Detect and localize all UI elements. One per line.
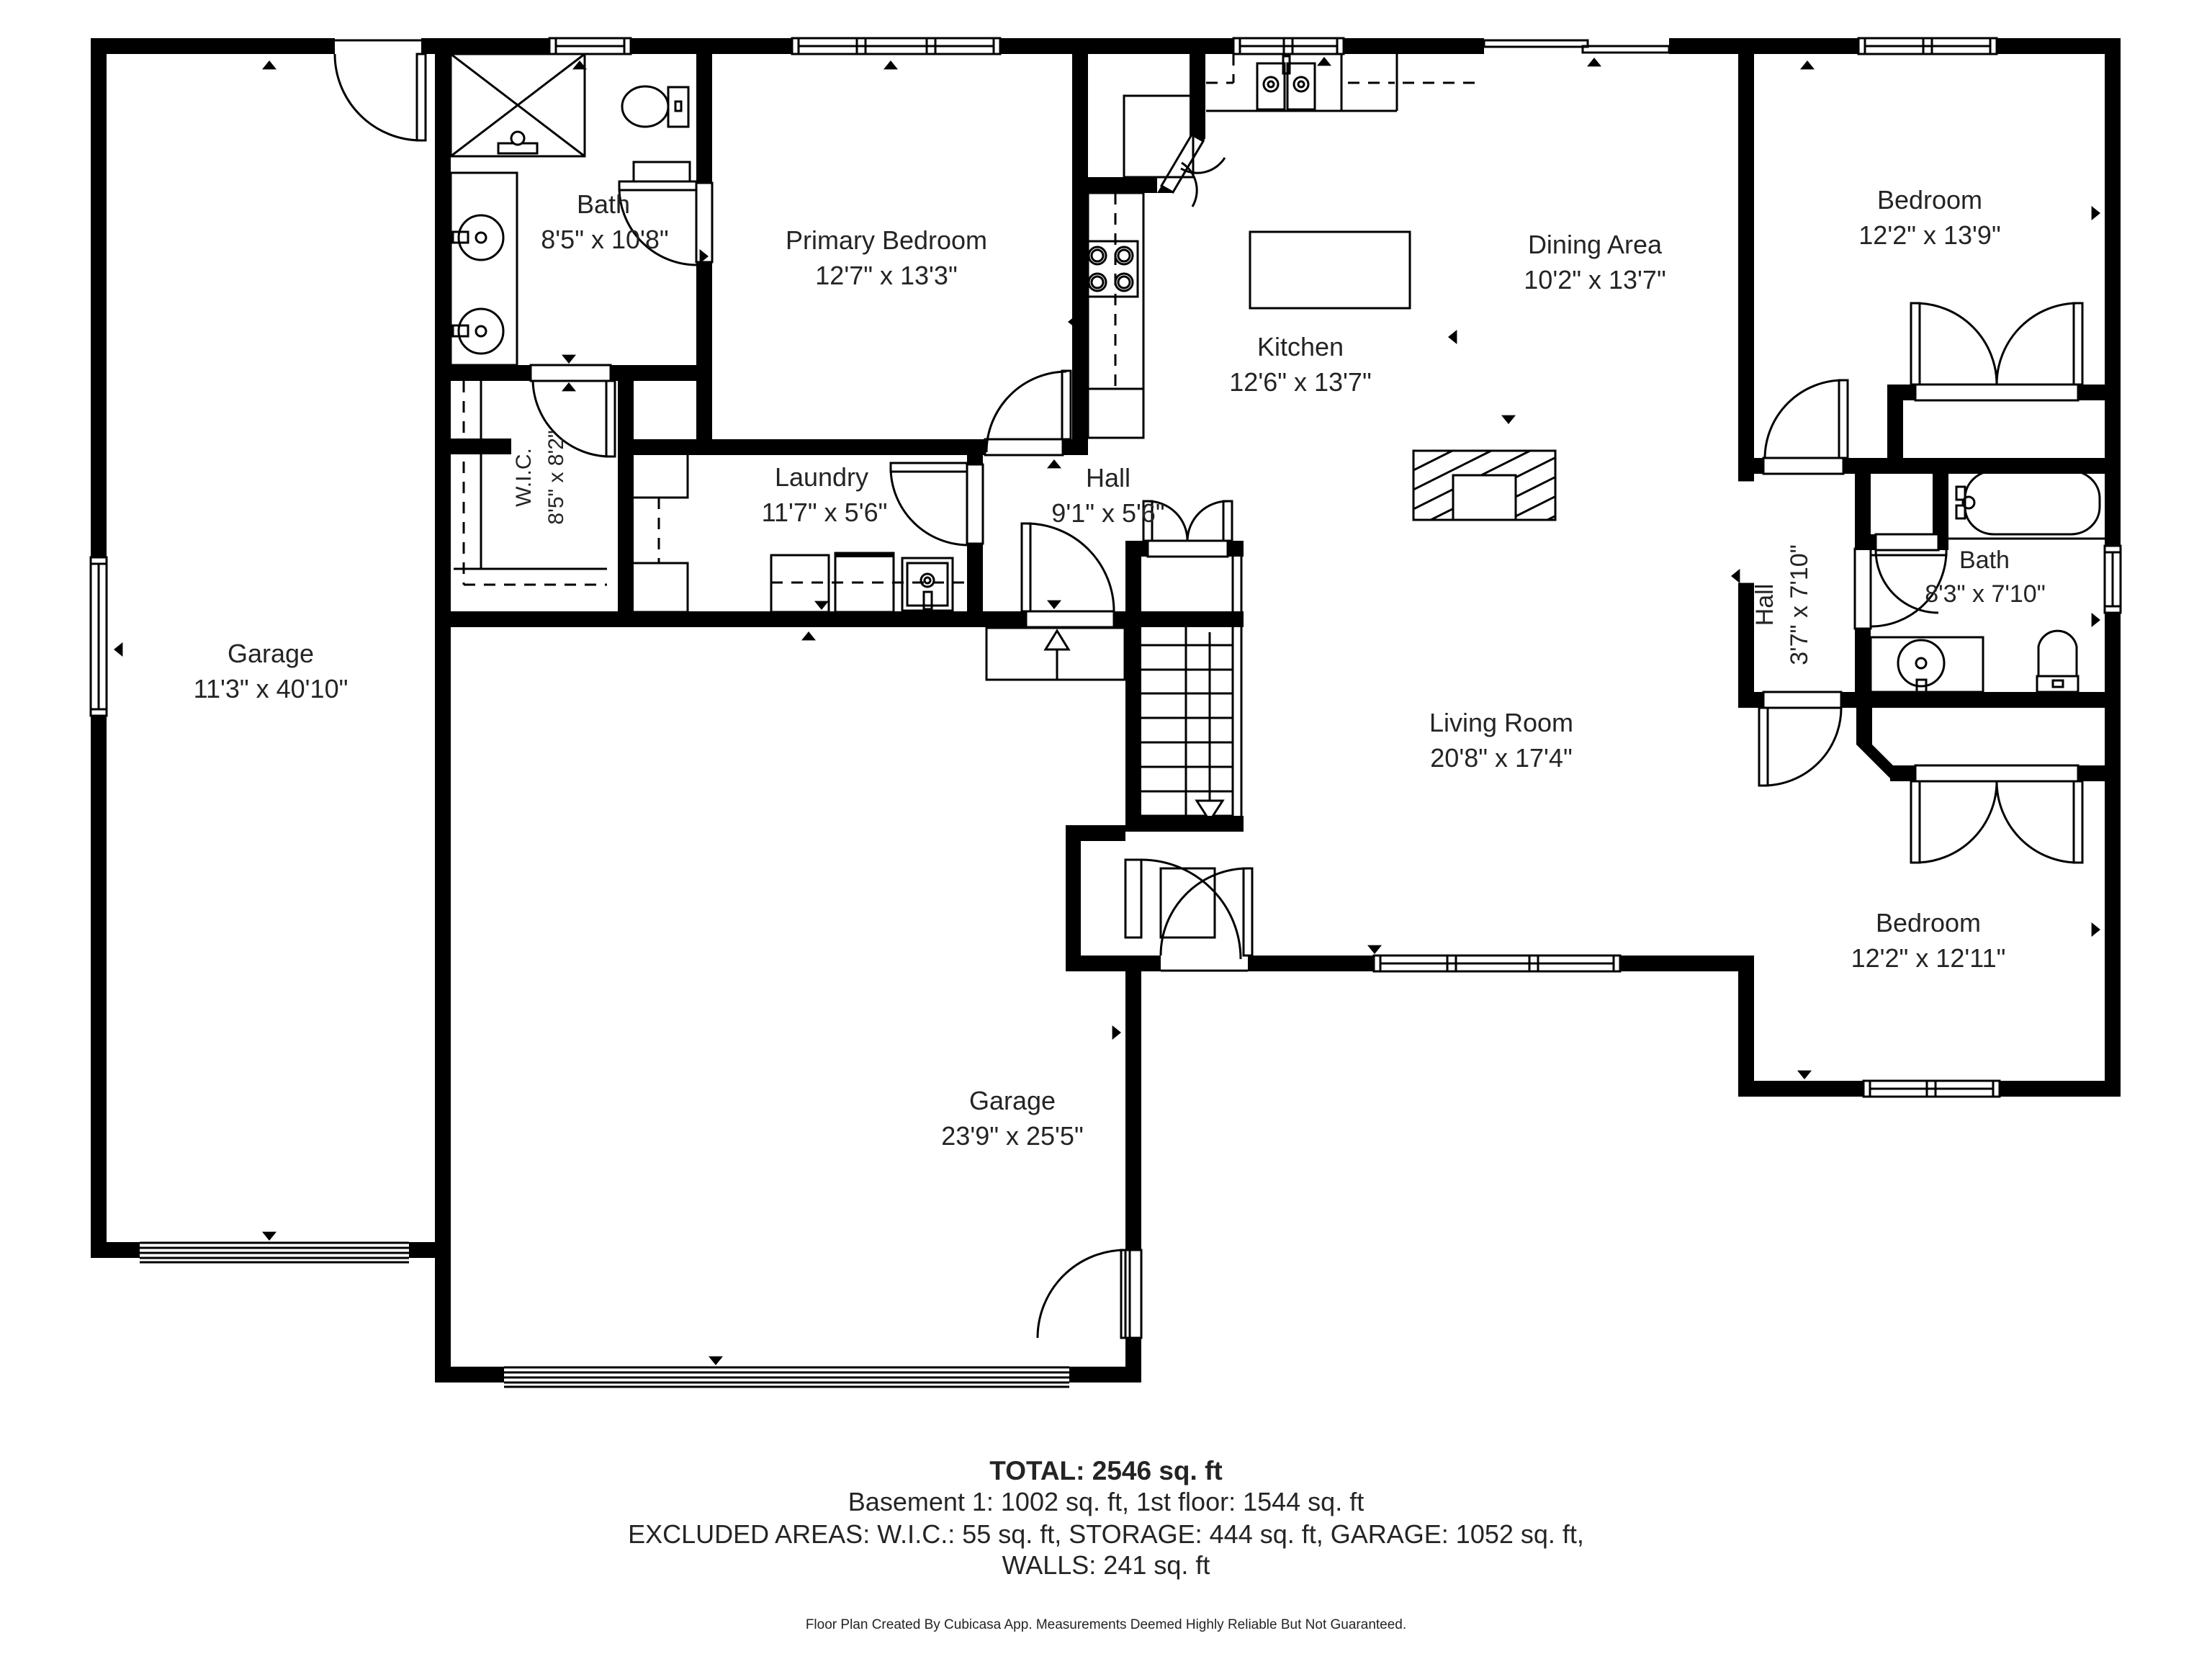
svg-text:12'2" x 13'9": 12'2" x 13'9" xyxy=(1858,220,2000,250)
svg-text:20'8" x 17'4": 20'8" x 17'4" xyxy=(1430,743,1572,773)
svg-text:8'3" x 7'10": 8'3" x 7'10" xyxy=(1925,580,2046,608)
svg-text:10'2" x 13'7": 10'2" x 13'7" xyxy=(1524,265,1665,295)
svg-text:Hall: Hall xyxy=(1086,463,1130,493)
svg-text:Floor Plan Created By Cubicasa: Floor Plan Created By Cubicasa App. Meas… xyxy=(806,1617,1406,1632)
svg-text:Laundry: Laundry xyxy=(775,462,868,492)
svg-text:Dining Area: Dining Area xyxy=(1528,230,1663,259)
svg-text:9'1" x 5'6": 9'1" x 5'6" xyxy=(1051,498,1164,528)
svg-text:12'7" x 13'3": 12'7" x 13'3" xyxy=(815,261,957,290)
svg-text:23'9" x 25'5": 23'9" x 25'5" xyxy=(941,1121,1083,1151)
svg-text:Hall: Hall xyxy=(1751,584,1779,626)
svg-text:Living Room: Living Room xyxy=(1429,708,1573,737)
svg-text:3'7" x 7'10": 3'7" x 7'10" xyxy=(1786,544,1813,665)
svg-text:Bath: Bath xyxy=(577,189,630,219)
svg-text:8'5" x 10'8": 8'5" x 10'8" xyxy=(541,225,668,254)
svg-text:Bedroom: Bedroom xyxy=(1876,908,1981,938)
svg-text:W.I.C.: W.I.C. xyxy=(512,448,536,507)
svg-text:EXCLUDED AREAS: W.I.C.: 55 sq.: EXCLUDED AREAS: W.I.C.: 55 sq. ft, STORA… xyxy=(628,1519,1584,1549)
svg-text:12'6" x 13'7": 12'6" x 13'7" xyxy=(1229,367,1371,397)
svg-text:Bedroom: Bedroom xyxy=(1877,185,1982,215)
svg-text:Garage: Garage xyxy=(969,1086,1056,1115)
svg-text:Primary Bedroom: Primary Bedroom xyxy=(786,225,987,255)
svg-text:12'2" x 12'11": 12'2" x 12'11" xyxy=(1851,943,2006,973)
svg-text:Bath: Bath xyxy=(1959,547,2010,574)
svg-text:8'5" x 8'2": 8'5" x 8'2" xyxy=(544,430,568,524)
svg-text:11'7" x 5'6": 11'7" x 5'6" xyxy=(762,498,888,527)
svg-text:Kitchen: Kitchen xyxy=(1257,332,1344,361)
svg-text:WALLS: 241 sq. ft: WALLS: 241 sq. ft xyxy=(1002,1550,1210,1580)
svg-text:Basement 1: 1002 sq. ft, 1st f: Basement 1: 1002 sq. ft, 1st floor: 1544… xyxy=(848,1487,1364,1516)
svg-text:TOTAL: 2546 sq. ft: TOTAL: 2546 sq. ft xyxy=(989,1456,1222,1485)
svg-text:Garage: Garage xyxy=(228,639,314,668)
svg-text:11'3" x 40'10": 11'3" x 40'10" xyxy=(194,674,349,703)
